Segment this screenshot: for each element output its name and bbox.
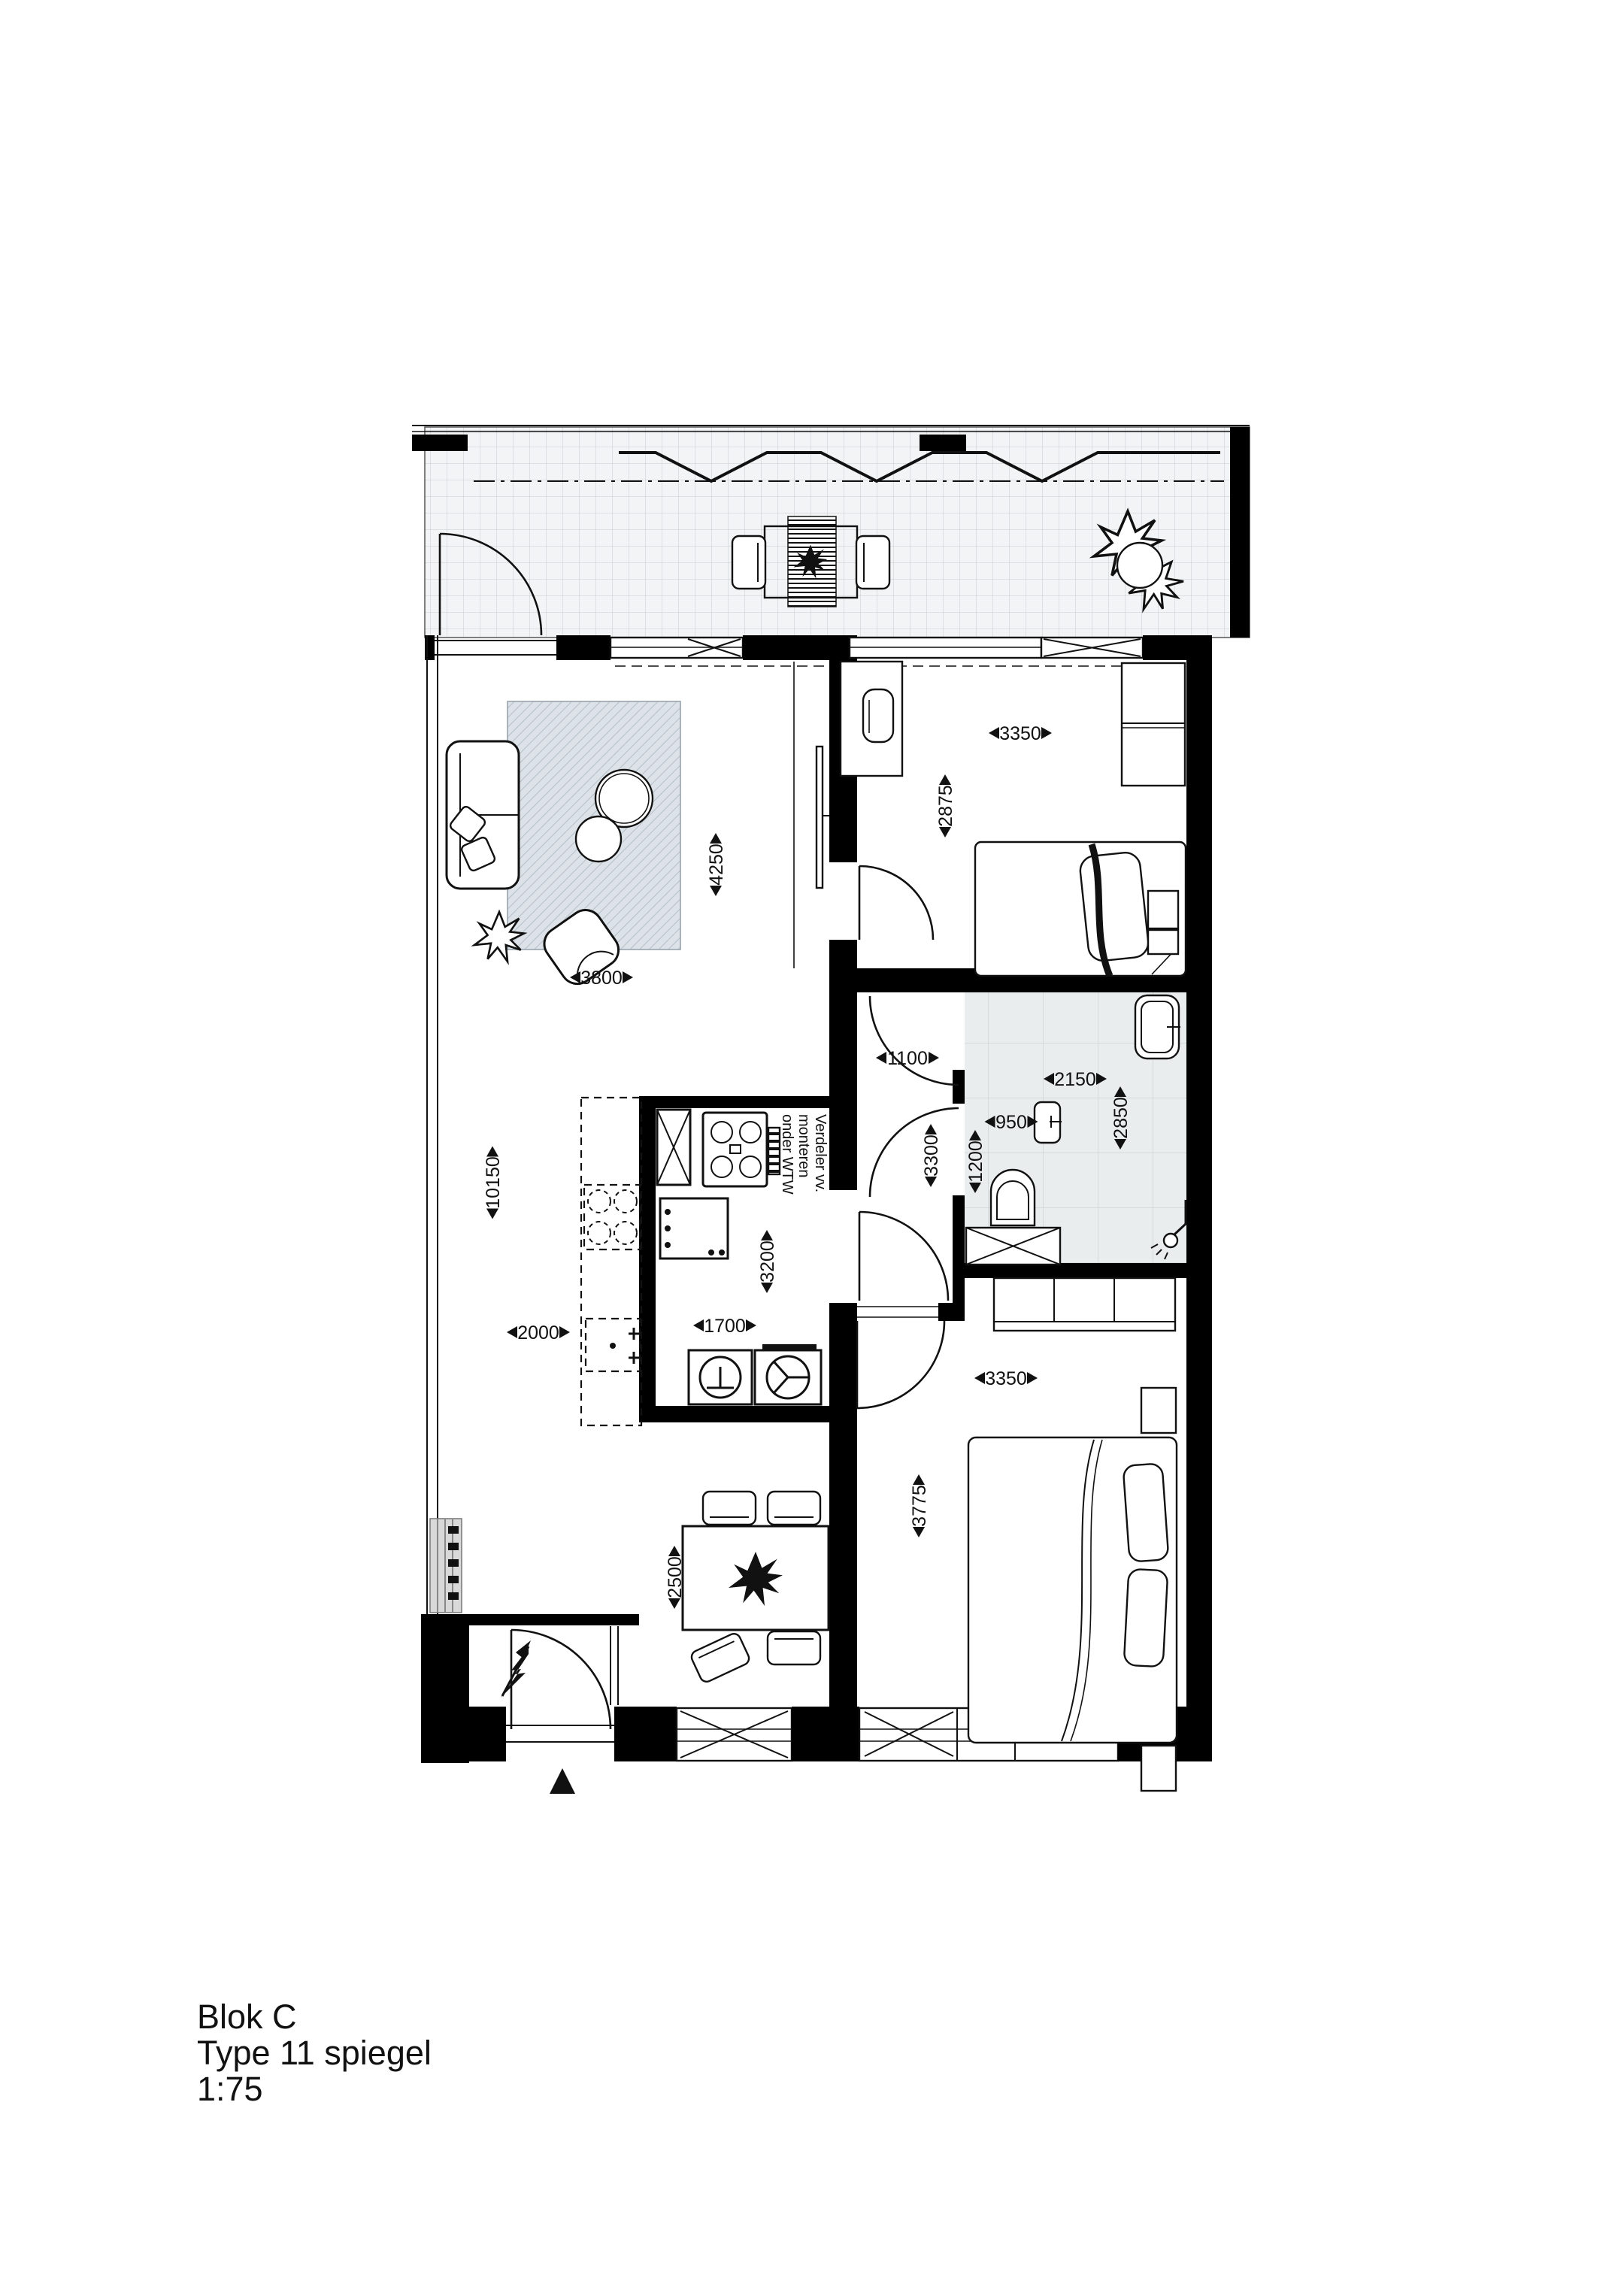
nightstand-top	[1141, 1388, 1176, 1433]
toilet	[991, 1170, 1035, 1225]
dimension-value: 2150	[1054, 1069, 1096, 1090]
dimension-value: 3200	[757, 1240, 778, 1283]
sofa	[447, 741, 519, 889]
balcony	[412, 426, 1250, 638]
title-line-2: Type 11 spiegel	[197, 2034, 432, 2072]
nightstand-bottom	[1141, 1746, 1176, 1791]
bed-single	[975, 842, 1186, 976]
bed-double	[968, 1437, 1177, 1743]
dryer	[755, 1344, 821, 1404]
right-wall	[1186, 635, 1212, 1761]
dimension-value: 3350	[985, 1368, 1027, 1389]
balcony-chair-left	[732, 536, 765, 589]
balcony-chair-right	[856, 536, 889, 589]
dining-chair	[768, 1492, 820, 1525]
washing-machine-position	[966, 1228, 1060, 1265]
dimension-value: 2500	[665, 1556, 686, 1598]
dining-chair	[703, 1492, 756, 1525]
floor-plan: Verdeler vv. monteren onder WTW 38004250…	[0, 0, 1624, 2296]
annotation-line-1: Verdeler vv.	[812, 1114, 829, 1192]
dimension-value: 4250	[706, 844, 727, 886]
dimension-value: 3350	[999, 723, 1041, 744]
railing-post-center	[920, 435, 966, 451]
hand-basin	[1035, 1102, 1062, 1143]
dining-chair	[768, 1631, 820, 1664]
dining-window	[677, 1708, 792, 1761]
wardrobe-bedroom1	[1122, 663, 1185, 786]
bedroom1-window	[850, 638, 1143, 658]
wardrobe-bedroom2	[994, 1278, 1175, 1331]
dimension-value: 1200	[965, 1140, 986, 1183]
annotation-line-2: monteren	[795, 1114, 812, 1178]
annotation-line-3: onder WTW	[779, 1114, 795, 1195]
dimension-value: 3775	[909, 1485, 930, 1527]
railing-post-left	[412, 435, 468, 451]
dimension-value: 1700	[704, 1316, 746, 1337]
washbasin	[1135, 995, 1180, 1059]
cooktop	[703, 1113, 767, 1186]
verdeler-manifold	[768, 1128, 780, 1174]
radiator	[430, 1519, 462, 1613]
washing-machine	[689, 1350, 752, 1404]
title-line-1: Blok C	[197, 1998, 297, 2036]
shaft	[657, 1110, 690, 1185]
dimension-value: 3300	[921, 1134, 942, 1177]
balcony-side-wall	[1230, 427, 1250, 638]
dimension-value: 2850	[1110, 1097, 1132, 1139]
title-line-3: 1:75	[197, 2070, 263, 2108]
oven	[660, 1198, 728, 1259]
dimension-value: 2875	[935, 785, 956, 827]
dimension-value: 1100	[887, 1048, 928, 1069]
dimension-value: 2000	[517, 1322, 559, 1343]
living-window	[611, 638, 743, 658]
dimension-value: 3800	[580, 968, 623, 989]
floor-plan-page: Verdeler vv. monteren onder WTW 38004250…	[0, 0, 1624, 2296]
dimension-value: 10150	[483, 1156, 504, 1209]
dimension-apartment-depth: 10150	[483, 1146, 504, 1219]
dimension-value: 950	[995, 1112, 1027, 1133]
desk-chair	[863, 689, 893, 742]
